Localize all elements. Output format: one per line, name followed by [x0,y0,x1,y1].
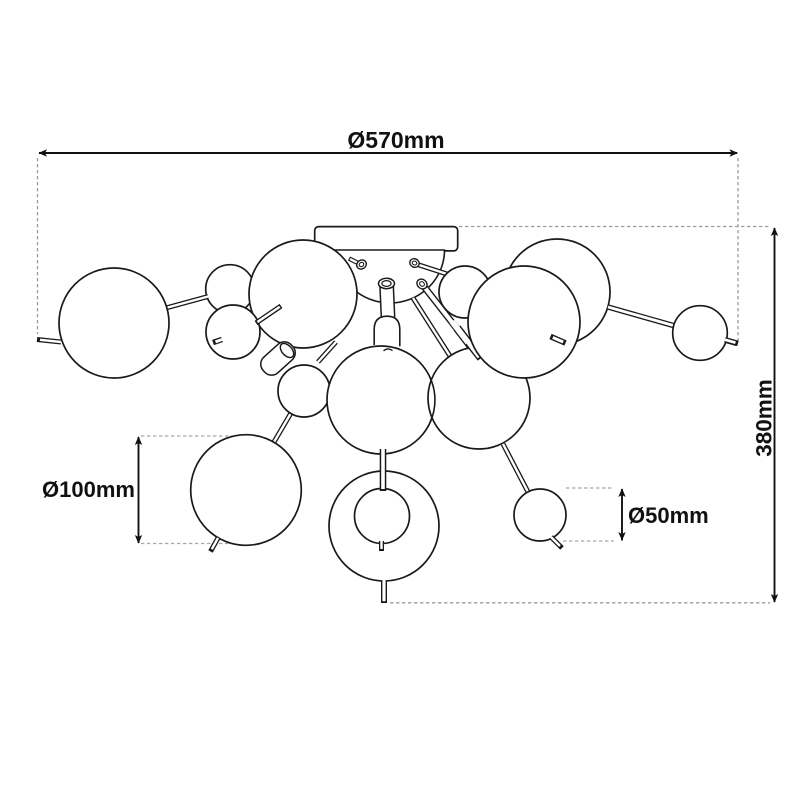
svg-text:380mm: 380mm [752,379,777,457]
svg-text:Ø570mm: Ø570mm [347,127,444,153]
svg-text:Ø100mm: Ø100mm [42,477,135,502]
svg-text:Ø50mm: Ø50mm [628,503,709,528]
